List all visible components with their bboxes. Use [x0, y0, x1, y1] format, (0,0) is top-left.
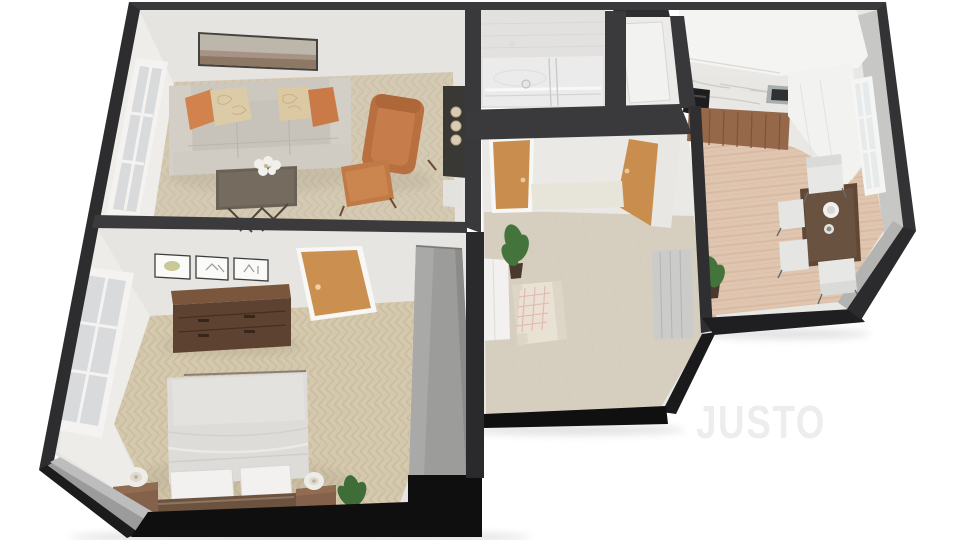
svg-text:JUSTO: JUSTO — [696, 396, 826, 448]
